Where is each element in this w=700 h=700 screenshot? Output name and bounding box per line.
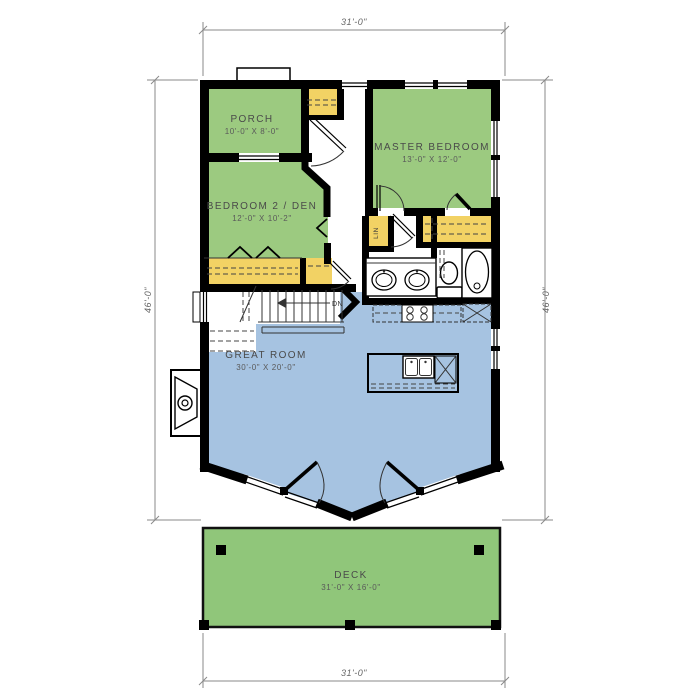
floor-plan-canvas: 31'-0" 31'-0" 46'-0" 46'-0" DECK 31'-0" … bbox=[0, 0, 700, 700]
deck-size: 31'-0" X 16'-0" bbox=[321, 583, 381, 592]
bedroom2-closet-floor bbox=[204, 258, 302, 284]
bedroom2-label: BEDROOM 2 / DEN bbox=[207, 201, 317, 212]
island-sink bbox=[403, 356, 434, 378]
floor-plan-page: 31'-0" 31'-0" 46'-0" 46'-0" DECK 31'-0" … bbox=[0, 0, 700, 700]
stair-dn-label: DN bbox=[332, 301, 343, 308]
great-room-size: 30'-0" X 20'-0" bbox=[236, 363, 296, 372]
dim-top: 31'-0" bbox=[341, 17, 367, 27]
bedroom2-size: 12'-0" X 10'-2" bbox=[232, 214, 292, 223]
linen-label: LIN bbox=[373, 227, 380, 239]
porch-size: 10'-0" X 8'-0" bbox=[225, 127, 280, 136]
entry-closet-floor bbox=[306, 89, 337, 115]
bathtub bbox=[462, 248, 492, 298]
chimney bbox=[237, 68, 290, 81]
stove bbox=[402, 305, 433, 322]
porch-label: PORCH bbox=[230, 114, 273, 125]
dim-left: 46'-0" bbox=[143, 287, 153, 313]
dim-right: 46'-0" bbox=[541, 287, 551, 313]
dim-bottom: 31'-0" bbox=[341, 668, 367, 678]
deck: DECK 31'-0" X 16'-0" bbox=[199, 528, 501, 630]
toilet-tank bbox=[437, 287, 462, 298]
master-bedroom-label: MASTER BEDROOM bbox=[374, 142, 490, 153]
great-room-label: GREAT ROOM bbox=[225, 350, 306, 361]
toilet-bowl bbox=[441, 262, 458, 284]
deck-label: DECK bbox=[334, 570, 367, 581]
master-bedroom-size: 13'-0" X 12'-0" bbox=[402, 155, 462, 164]
fireplace bbox=[171, 370, 204, 436]
